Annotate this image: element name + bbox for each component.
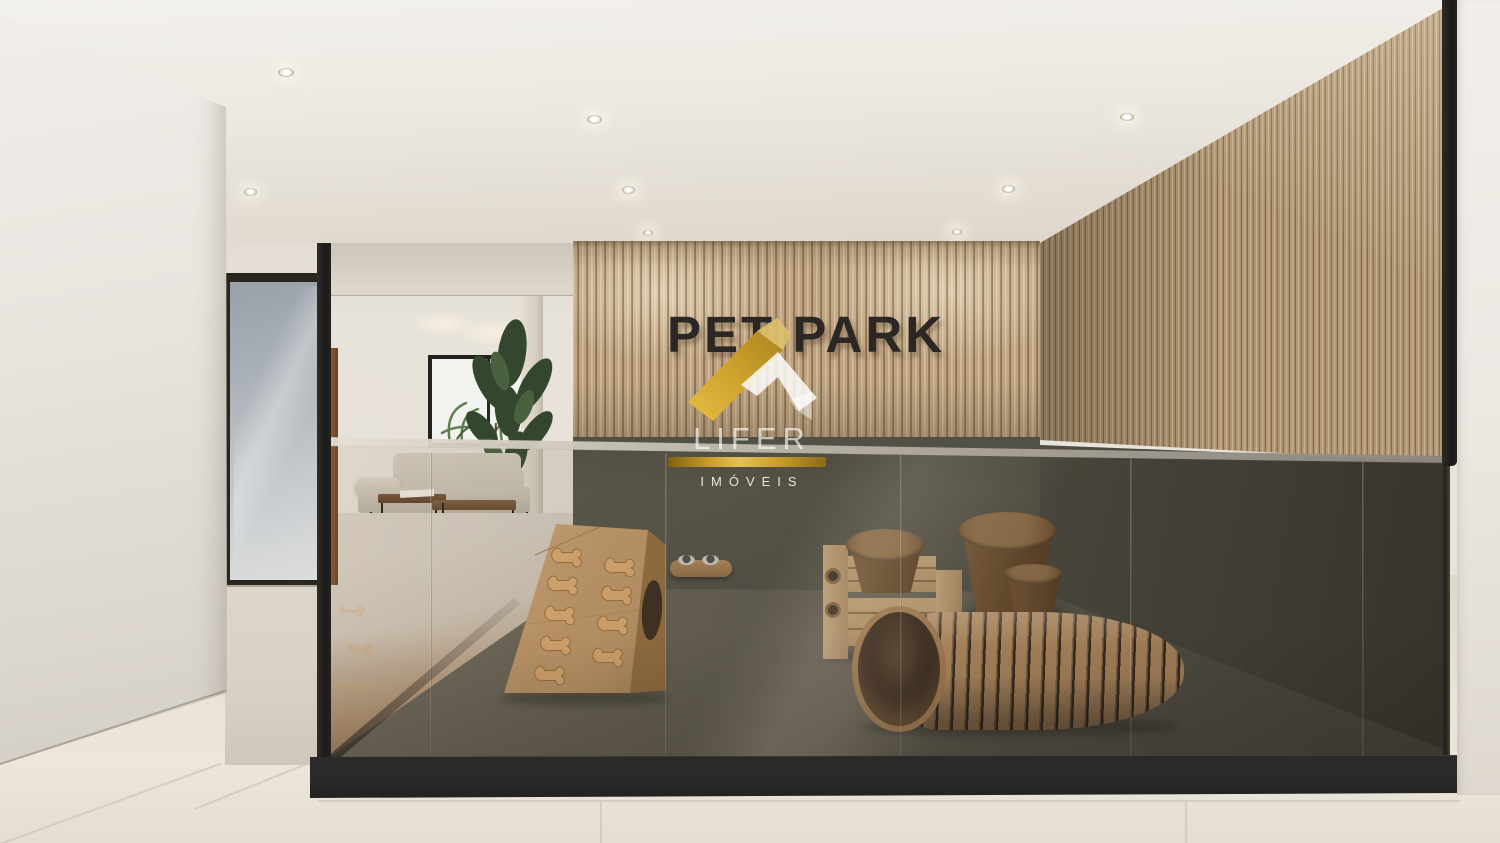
pet-park-sign: PET PARK [575,305,1037,364]
downlight-icon [622,186,635,194]
bridge-porthole [825,568,841,584]
pet-park-render: PET PARK [0,0,1500,843]
tile-grout-line [1185,801,1187,843]
downlight-icon [244,188,257,196]
coffee-table [432,500,516,510]
tile-grout-line [318,800,1460,802]
downlight-icon [1002,185,1015,193]
wall-corner-post [1442,0,1457,466]
dog-tunnel [852,606,1186,736]
sofa-backrest [393,453,521,489]
downlight-icon [1120,113,1134,121]
tile-grout-line [600,802,602,843]
bridge-porthole [825,602,841,618]
tile-grout-line [0,763,221,843]
glass-sheen [234,286,318,576]
hallway-floor [225,587,330,765]
stump-stool [846,525,926,595]
bone-reflection [336,603,366,617]
glass-corner-post [317,243,331,765]
dog-bowl [702,555,719,565]
downlight-icon [643,230,653,236]
wood-door-edge [330,348,338,585]
downlight-icon [952,229,962,235]
dog-bowl [678,555,695,565]
bone-reflection [344,641,374,655]
dog-ramp [495,515,680,705]
right-wall [1457,0,1500,795]
downlight-icon [278,68,294,77]
ceiling-shadow [573,241,1040,248]
hallway [225,243,330,765]
tunnel-opening [852,606,946,732]
bone-reflection [334,679,364,693]
frosted-glass-door [225,273,327,585]
glass-edge [1443,462,1447,758]
downlight-icon [587,115,602,124]
enclosure-base-plinth [310,753,1458,800]
